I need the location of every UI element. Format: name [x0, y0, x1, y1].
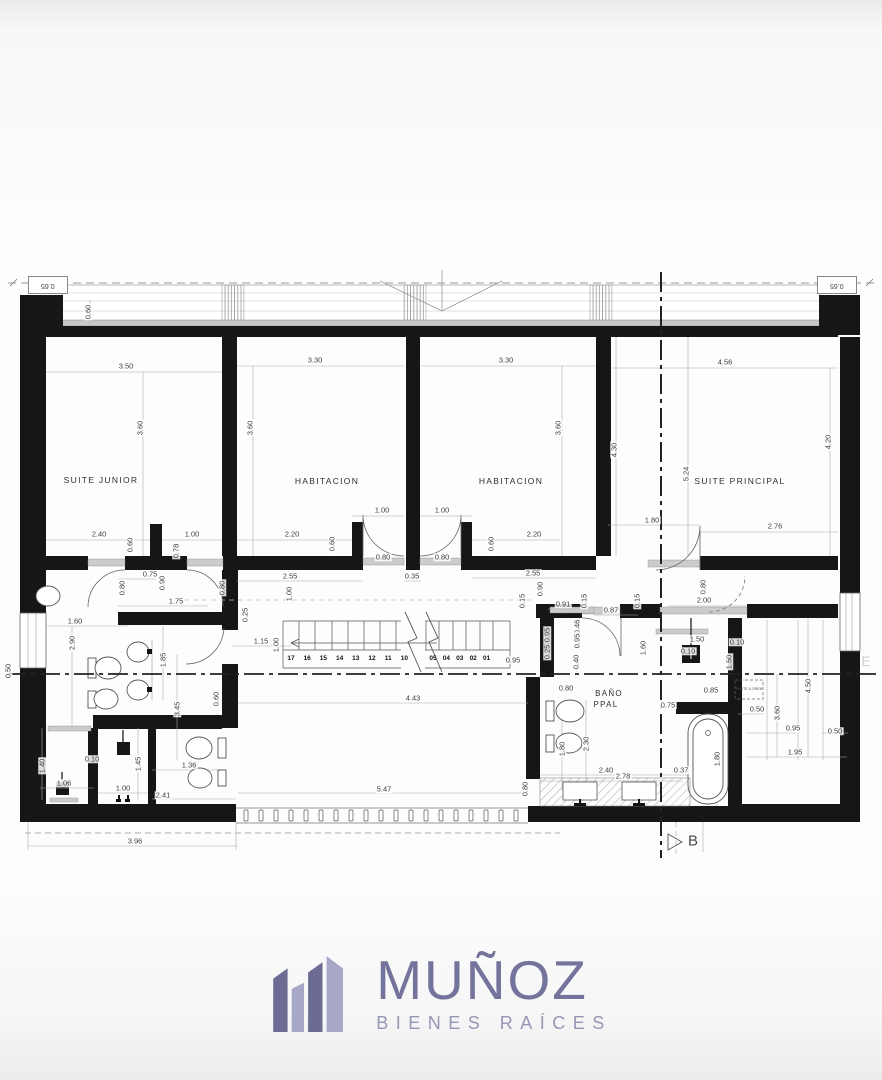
floor-plan-linework	[0, 0, 882, 1080]
corner-dim-left: 0.65	[41, 282, 55, 289]
brand-logo: MUÑOZ BIENES RAÍCES	[270, 952, 612, 1032]
corner-dim-right: 0.65	[830, 282, 844, 289]
logo-buildings-icon	[270, 952, 356, 1032]
corner-dim-box-left: 0.65	[28, 276, 68, 294]
brand-name: MUÑOZ	[376, 953, 588, 1008]
corner-dim-box-right: 0.65	[817, 276, 857, 294]
floor-plan: 0.65 0.65 0.603.503.603.303.603.303.604.…	[0, 0, 882, 1080]
brand-tagline: BIENES RAÍCES	[376, 1014, 612, 1032]
